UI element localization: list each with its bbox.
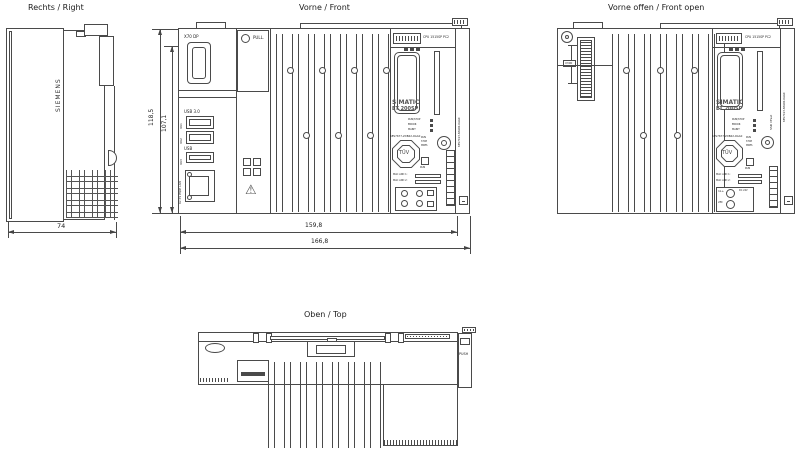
left-block-slot	[241, 372, 265, 376]
label-strip	[405, 334, 450, 339]
handle-recess	[205, 343, 225, 353]
top-tab	[385, 333, 391, 343]
corner-label	[462, 327, 476, 333]
center-bracket-inner	[316, 345, 346, 354]
center-tab	[327, 338, 337, 342]
top-view-title: Oben / Top	[304, 311, 347, 320]
left-block	[237, 360, 269, 382]
top-view: Oben / Top PUSH	[0, 0, 800, 452]
micro-label	[200, 378, 230, 382]
push-label: PUSH	[459, 353, 468, 357]
latch-detail	[460, 338, 470, 345]
top-tab	[253, 333, 259, 343]
top-tab	[398, 333, 404, 343]
body-depth-block	[383, 385, 458, 446]
dimension-drawing: Rechts / Right SIEMENS 74 Vorne / Front …	[0, 0, 800, 452]
heatsink-fins-top	[268, 362, 384, 448]
bottom-hatch	[384, 440, 457, 445]
